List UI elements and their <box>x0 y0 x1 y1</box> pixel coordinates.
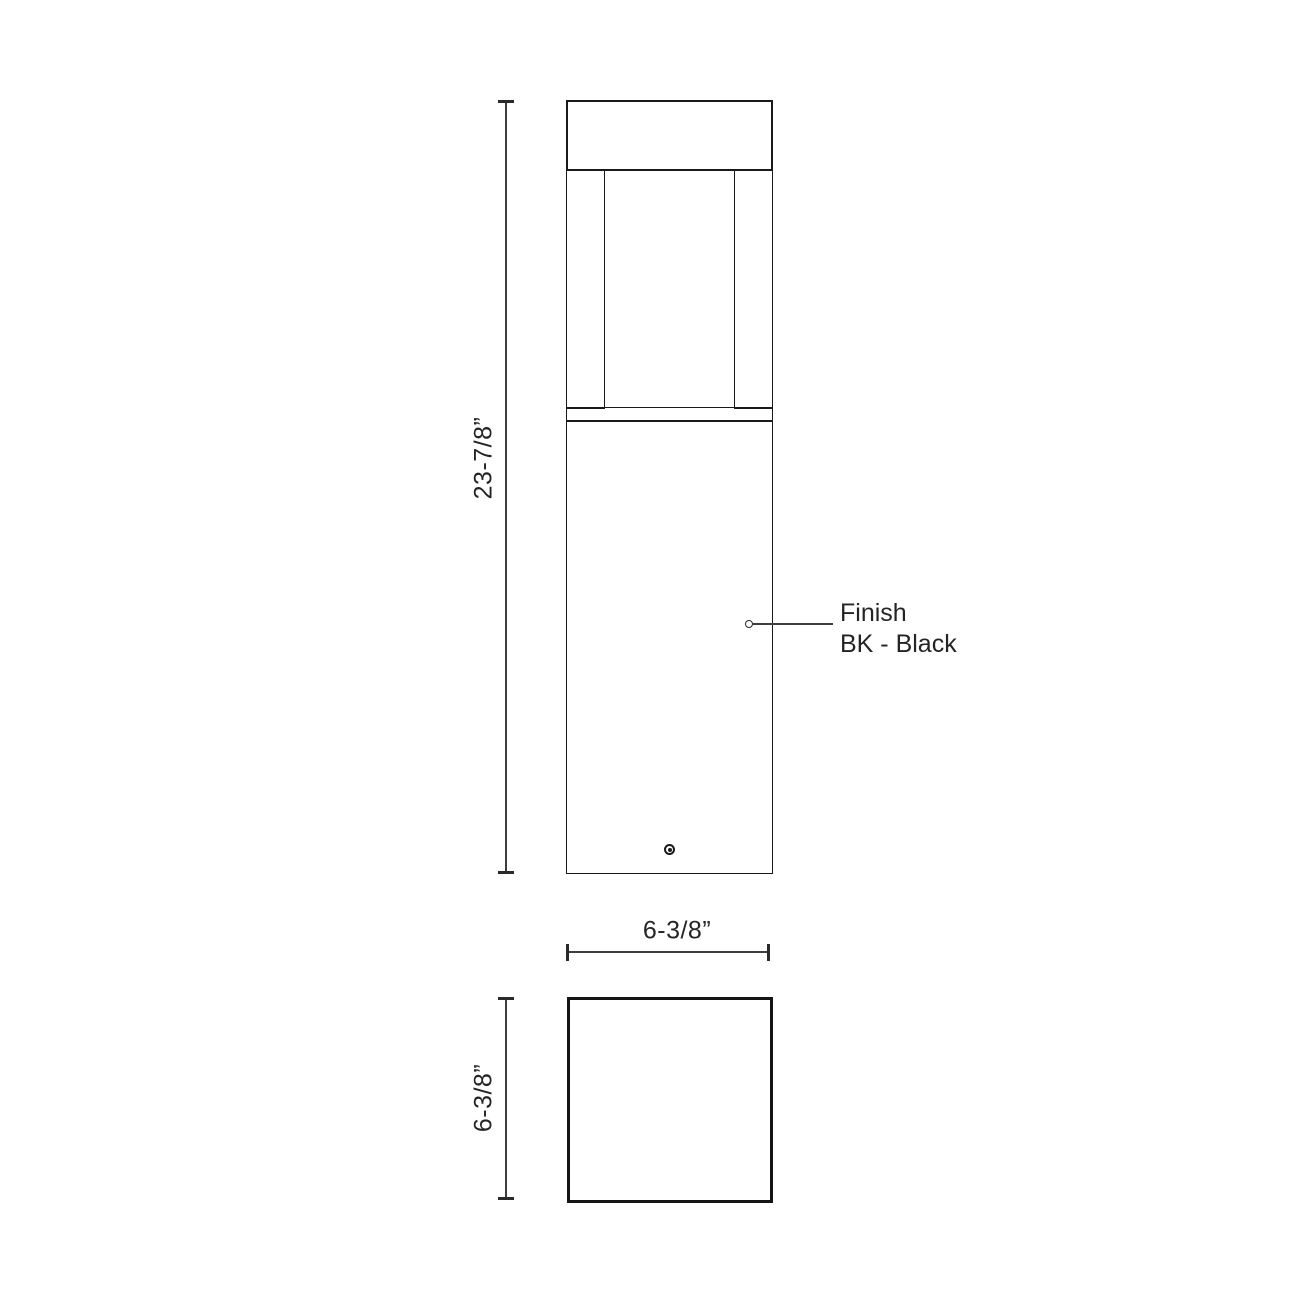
window-right-mullion <box>734 169 773 409</box>
depth-dim-label: 6-3/8” <box>470 1064 499 1132</box>
finish-callout-text: Finish BK - Black <box>840 598 957 660</box>
window-lens-area <box>605 171 734 407</box>
window-left-mullion <box>566 169 605 409</box>
leader-line <box>753 623 833 625</box>
width-dim-line <box>567 951 769 953</box>
width-dim-left-tick <box>566 944 569 961</box>
height-dim-top-tick <box>498 100 514 103</box>
technical-drawing-canvas: 23-7/8” Finish BK - Black 6-3/8” 6-3/8” <box>0 0 1296 1296</box>
finish-callout-line2: BK - Black <box>840 629 957 660</box>
plan-view-square <box>567 997 773 1203</box>
bollard-cap <box>566 100 773 171</box>
width-dim-label: 6-3/8” <box>643 917 711 946</box>
depth-dim-line <box>505 998 507 1198</box>
leader-dot-icon <box>745 620 753 628</box>
depth-dim-bottom-tick <box>498 1197 514 1200</box>
height-dim-label: 23-7/8” <box>470 417 499 500</box>
height-dim-line <box>505 101 507 872</box>
finish-callout-line1: Finish <box>840 598 957 629</box>
bollard-body <box>566 420 773 874</box>
depth-dim-top-tick <box>498 997 514 1000</box>
set-screw-center-icon <box>668 848 672 852</box>
width-dim-right-tick <box>767 944 770 961</box>
height-dim-bottom-tick <box>498 871 514 874</box>
